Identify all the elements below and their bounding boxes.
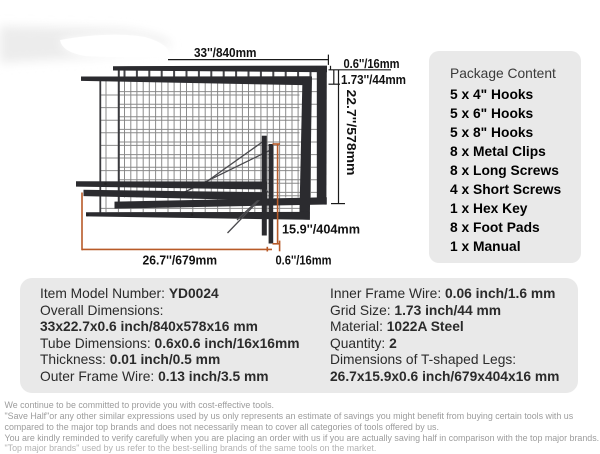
- svg-text:0.6''/16mm: 0.6''/16mm: [344, 56, 400, 71]
- svg-text:15.9''/404mm: 15.9''/404mm: [282, 222, 360, 237]
- svg-text:26.7''/679mm: 26.7''/679mm: [143, 253, 218, 268]
- svg-text:22.7''/578mm: 22.7''/578mm: [344, 90, 359, 176]
- svg-text:0.6''/16mm: 0.6''/16mm: [276, 253, 332, 268]
- svg-text:1.73''/44mm: 1.73''/44mm: [341, 72, 406, 87]
- svg-text:33''/840mm: 33''/840mm: [194, 45, 257, 60]
